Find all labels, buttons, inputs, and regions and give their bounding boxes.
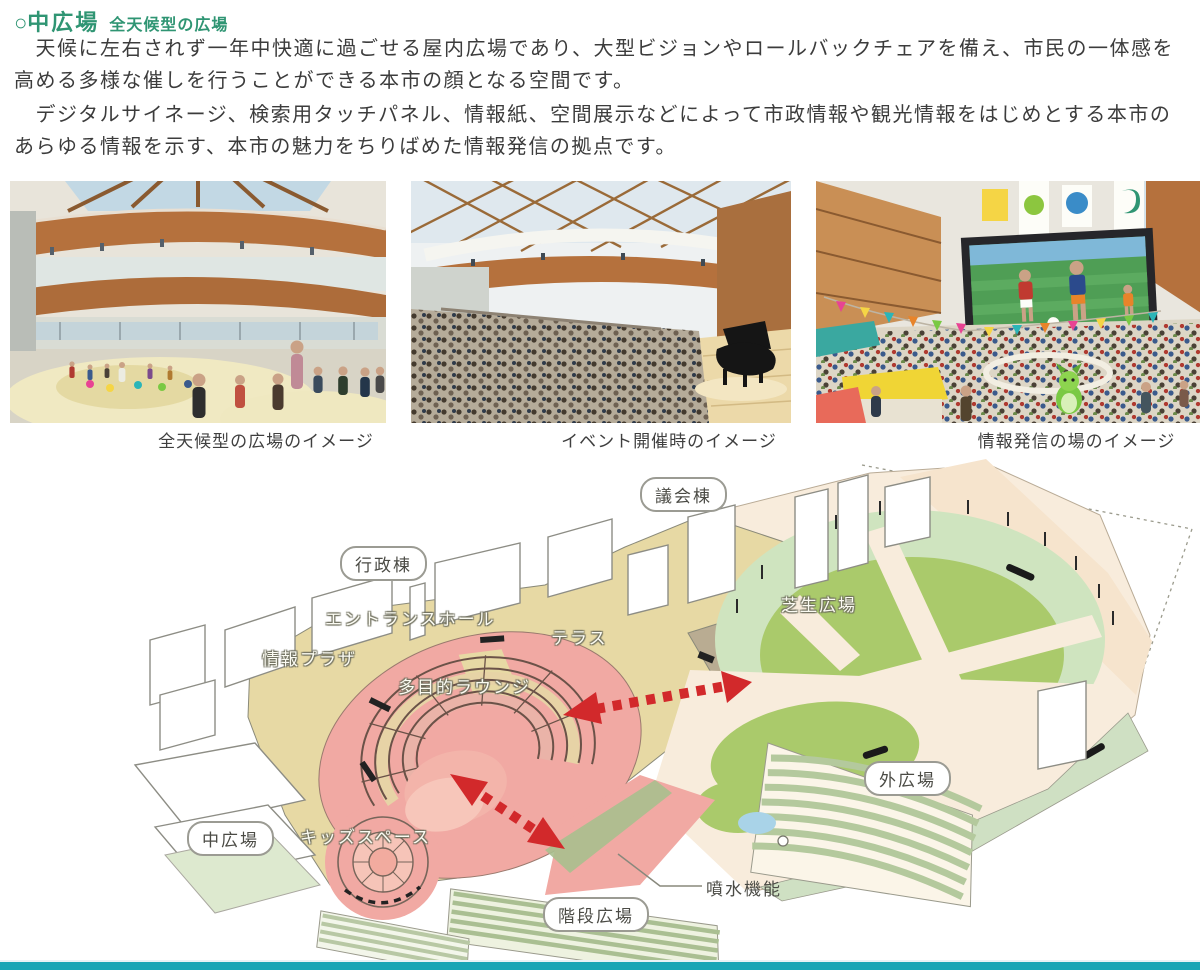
label-terrace: テラス	[551, 624, 608, 649]
label-outer-plaza: 外広場	[864, 761, 951, 796]
site-plan-drawing	[0, 455, 1200, 962]
label-fountain-feature: 噴水機能	[706, 875, 782, 900]
page-title: 中広場	[27, 10, 99, 35]
label-admin-building: 行政棟	[340, 546, 427, 581]
document-page: { "page": { "header": { "marker": "○", "…	[0, 0, 1200, 970]
site-plan-diagram: 議会棟 行政棟 外広場 中広場 階段広場 エントランスホール テラス 情報プラザ…	[0, 455, 1200, 962]
label-kids-space: キッズスペース	[300, 823, 431, 848]
label-stair-plaza: 階段広場	[543, 897, 649, 932]
label-multipurpose-lounge: 多目的ラウンジ	[398, 673, 531, 698]
label-central-plaza: 中広場	[187, 821, 274, 856]
rendering-event	[411, 181, 791, 423]
indoor-plaza-image	[10, 181, 386, 423]
label-lawn-plaza: 芝生広場	[781, 591, 857, 616]
page-subtitle: 全天候型の広場	[109, 11, 228, 35]
rendering-indoor-plaza	[10, 181, 386, 423]
label-info-plaza: 情報プラザ	[262, 645, 357, 670]
photo-captions: 全天候型の広場のイメージ イベント開催時のイメージ 情報発信の場のイメージ	[10, 427, 1200, 452]
caption-indoor-plaza: 全天候型の広場のイメージ	[78, 427, 454, 452]
caption-info-hub: 情報発信の場のイメージ	[884, 427, 1200, 452]
paragraph-1: 天候に左右されず一年中快適に過ごせる屋内広場であり、大型ビジョンやロールバックチ…	[14, 33, 1190, 98]
event-image	[411, 181, 791, 423]
rendering-photo-row	[10, 181, 1200, 423]
caption-event: イベント開催時のイメージ	[479, 427, 859, 452]
body-text: 天候に左右されず一年中快適に過ごせる屋内広場であり、大型ビジョンやロールバックチ…	[14, 33, 1190, 165]
label-council-building: 議会棟	[640, 477, 727, 512]
info-hub-image	[816, 181, 1200, 423]
label-entrance-hall: エントランスホール	[325, 605, 496, 630]
footer-accent-bar	[0, 960, 1200, 970]
paragraph-2: デジタルサイネージ、検索用タッチパネル、情報紙、空間展示などによって市政情報や観…	[14, 99, 1190, 164]
rendering-info-hub	[816, 181, 1200, 423]
